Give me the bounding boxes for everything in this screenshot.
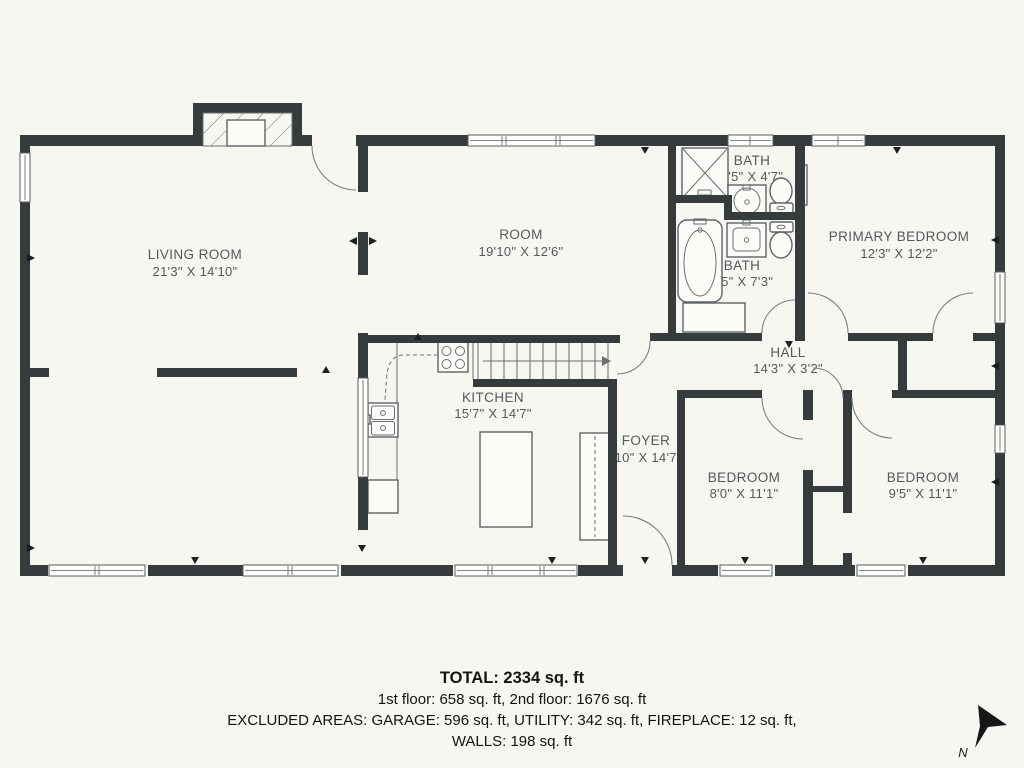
window bbox=[243, 565, 338, 576]
window bbox=[49, 565, 145, 576]
window bbox=[728, 135, 773, 146]
window bbox=[455, 565, 577, 576]
pantry-cabinet bbox=[580, 433, 610, 540]
living-room-dims: 21'3" X 14'10" bbox=[153, 264, 238, 279]
door-arc bbox=[617, 341, 650, 374]
doors bbox=[312, 146, 973, 565]
room-dims: 19'10" X 12'6" bbox=[479, 244, 564, 259]
hall-label: HALL bbox=[770, 345, 805, 360]
sink-icon bbox=[727, 220, 766, 257]
fireplace bbox=[193, 103, 302, 146]
stove-icon bbox=[438, 342, 468, 372]
door-arc bbox=[933, 293, 973, 333]
window bbox=[857, 565, 905, 576]
toilet-icon bbox=[770, 178, 793, 213]
living-room-label: LIVING ROOM bbox=[148, 247, 242, 262]
bedroom-right-dims: 9'5" X 11'1" bbox=[889, 486, 958, 501]
walls-area: WALLS: 198 sq. ft bbox=[0, 731, 1024, 752]
hall-dims: 14'3" X 3'2" bbox=[753, 361, 823, 376]
window bbox=[468, 135, 595, 146]
door-arc bbox=[762, 398, 803, 439]
bedroom-left-dims: 8'0" X 11'1" bbox=[710, 486, 779, 501]
window bbox=[995, 272, 1005, 323]
door-arc bbox=[312, 146, 356, 190]
pass-through-window bbox=[358, 378, 368, 477]
floor-plan-page: LIVING ROOM 21'3" X 14'10" ROOM 19'10" X… bbox=[0, 0, 1024, 768]
primary-bedroom-label: PRIMARY BEDROOM bbox=[829, 229, 970, 244]
bath-upper-label: BATH bbox=[734, 153, 771, 168]
floor-plan-drawing: LIVING ROOM 21'3" X 14'10" ROOM 19'10" X… bbox=[0, 0, 1024, 768]
kitchen-fixtures bbox=[364, 342, 610, 540]
kitchen-label: KITCHEN bbox=[462, 390, 524, 405]
bathtub-icon bbox=[678, 219, 722, 302]
excluded-areas: EXCLUDED AREAS: GARAGE: 596 sq. ft, UTIL… bbox=[0, 710, 1024, 731]
staircase bbox=[473, 343, 611, 379]
bath-lower-label: BATH bbox=[724, 258, 761, 273]
vanity-cabinet bbox=[683, 303, 745, 332]
room-label: ROOM bbox=[499, 227, 543, 242]
toilet-icon bbox=[770, 222, 793, 258]
area-summary: TOTAL: 2334 sq. ft 1st floor: 658 sq. ft… bbox=[0, 668, 1024, 752]
window bbox=[812, 135, 865, 146]
kitchen-sink-icon bbox=[364, 403, 398, 437]
window bbox=[995, 425, 1005, 453]
bedroom-right-label: BEDROOM bbox=[887, 470, 960, 485]
shower-icon bbox=[682, 148, 728, 198]
door-arc bbox=[762, 300, 795, 333]
kitchen-island bbox=[480, 432, 532, 527]
bedroom-left-label: BEDROOM bbox=[708, 470, 781, 485]
window bbox=[20, 153, 30, 202]
primary-bedroom-dims: 12'3" X 12'2" bbox=[860, 246, 937, 261]
door-arc bbox=[852, 398, 892, 438]
stair-direction-arrow bbox=[483, 356, 611, 366]
door-arc bbox=[808, 293, 848, 333]
window bbox=[720, 565, 772, 576]
kitchen-dims: 15'7" X 14'7" bbox=[454, 406, 531, 421]
total-area: TOTAL: 2334 sq. ft bbox=[0, 668, 1024, 689]
floor-areas: 1st floor: 658 sq. ft, 2nd floor: 1676 s… bbox=[0, 689, 1024, 710]
foyer-label: FOYER bbox=[622, 433, 671, 448]
